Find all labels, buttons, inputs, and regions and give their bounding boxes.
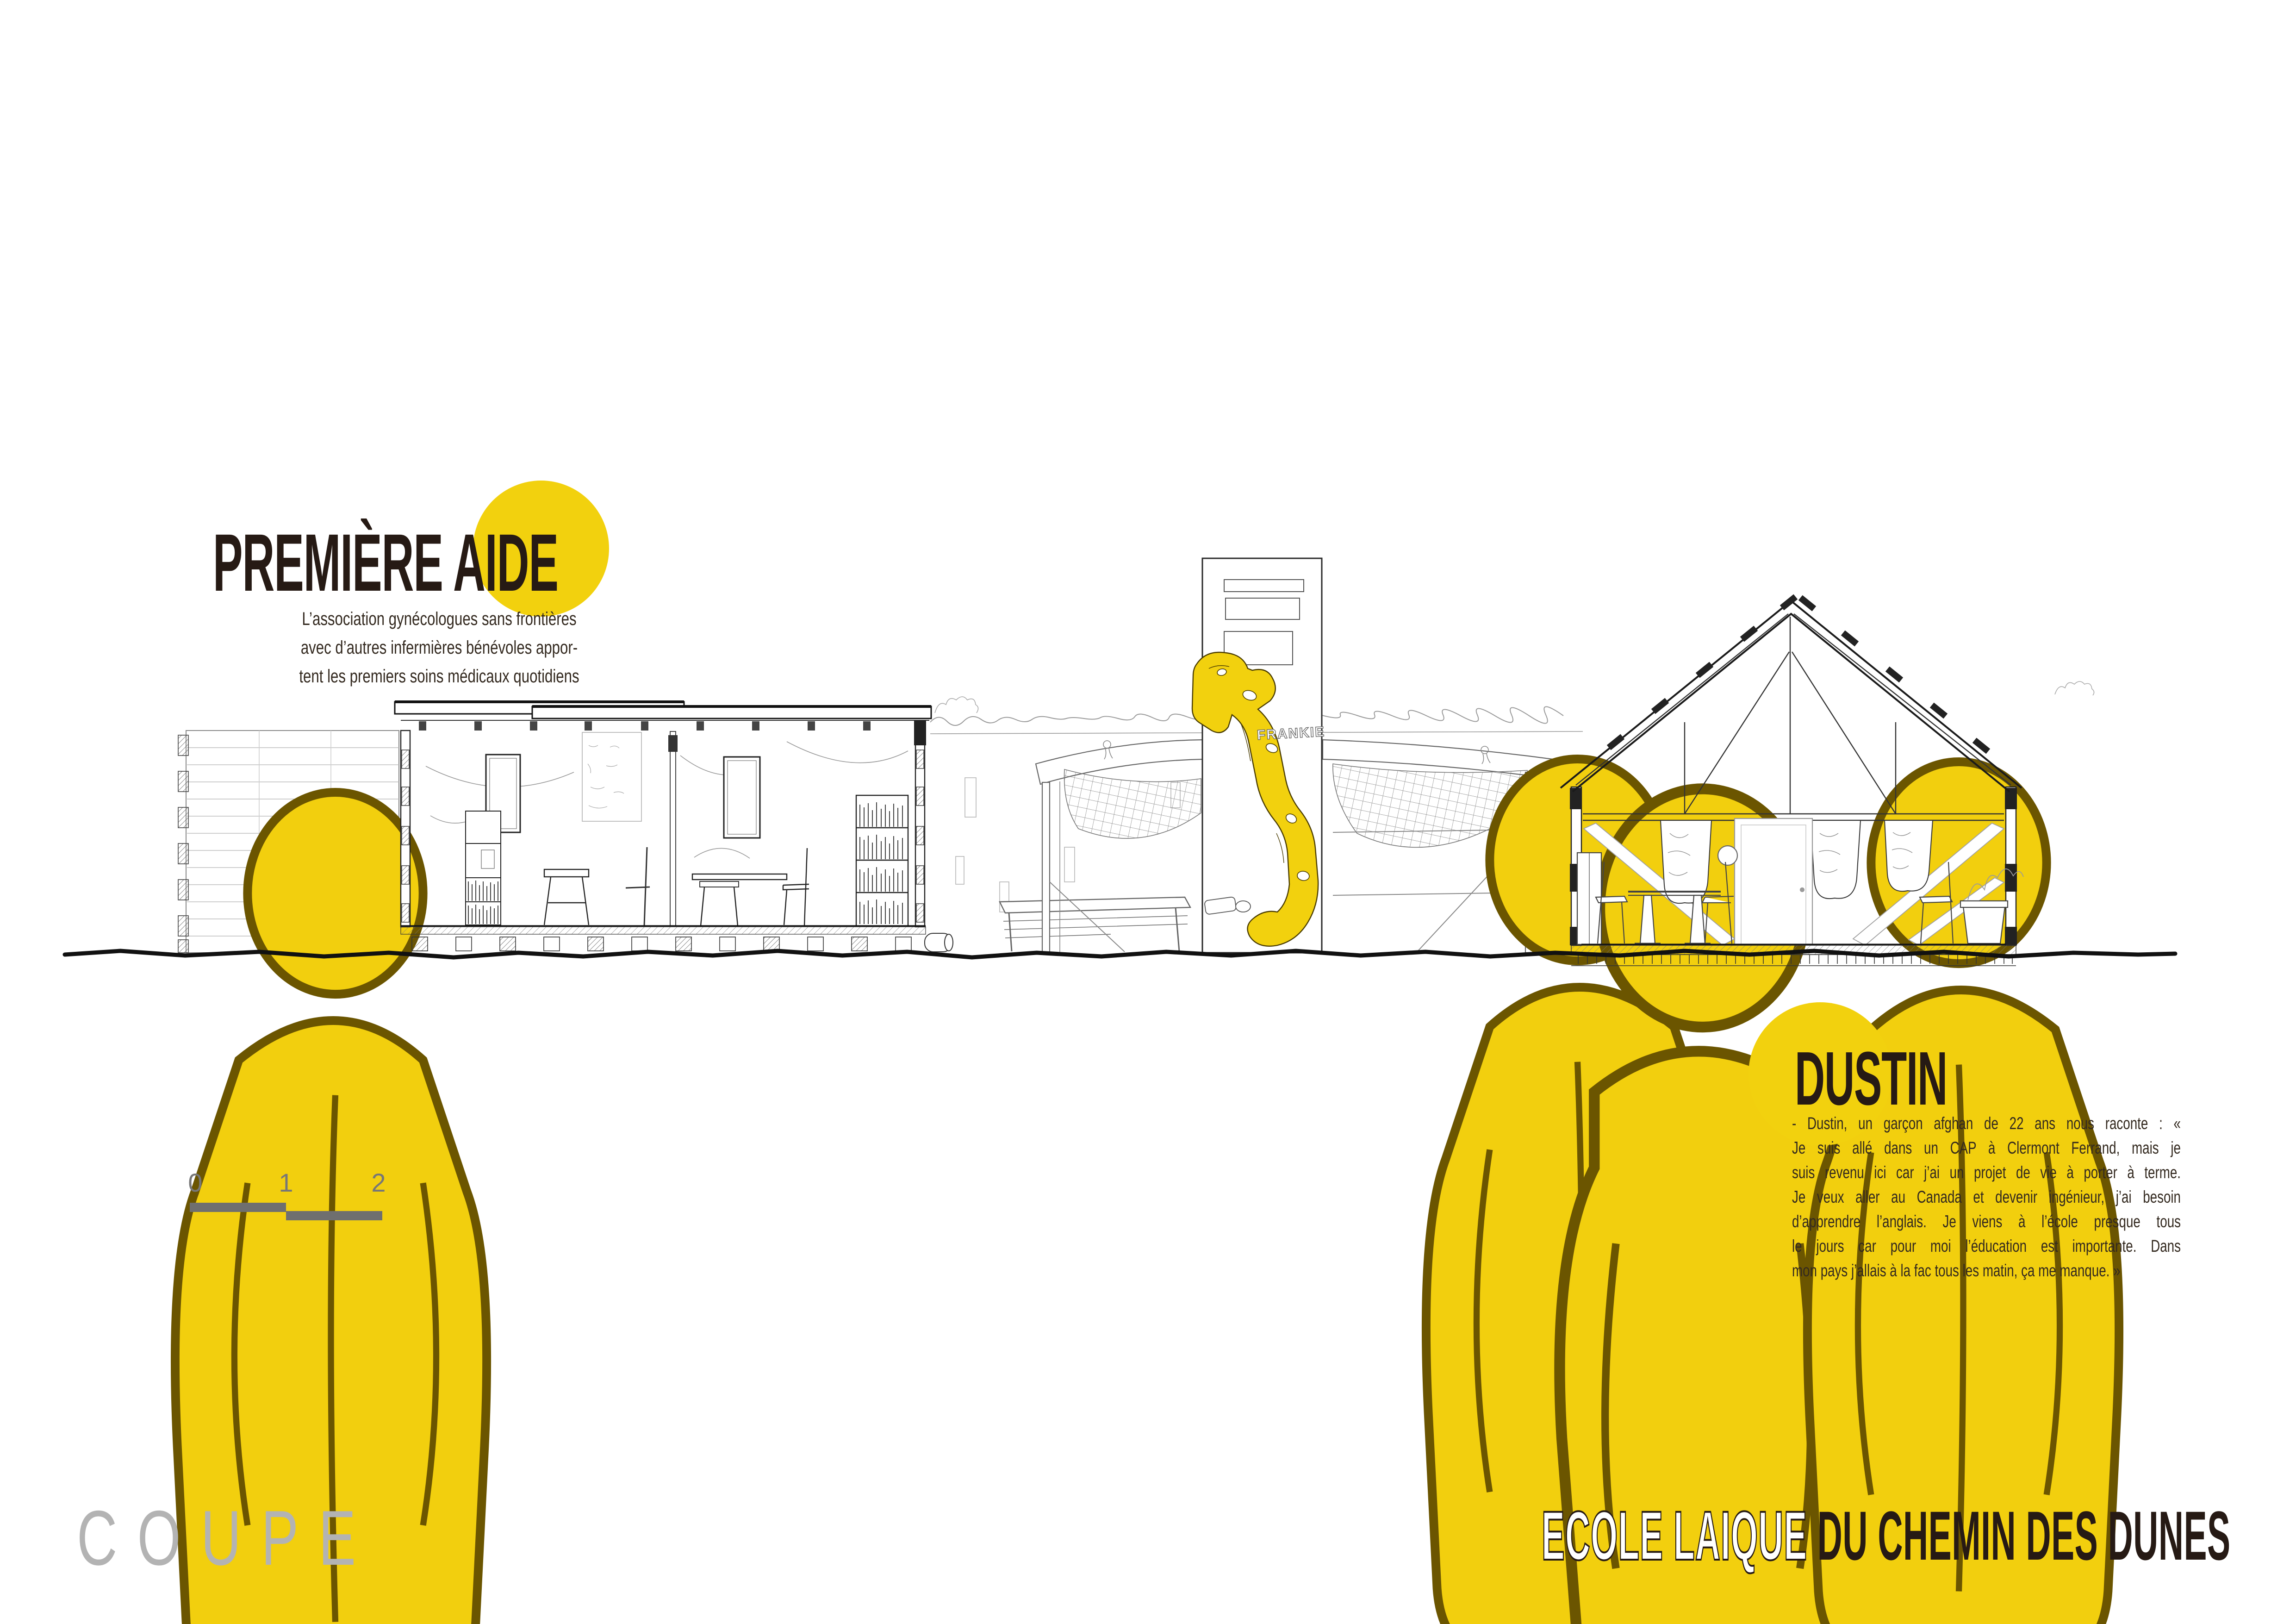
first-aid-title: PREMIÈRE AIDE [213, 522, 558, 604]
section-drawing: FRANKIE [0, 0, 2296, 1624]
first-aid-line: L’association gynécologues sans frontièr… [277, 605, 602, 633]
scale-segment-second [286, 1211, 382, 1220]
first-aid-line: tent les premiers soins médicaux quotidi… [277, 662, 602, 691]
dustin-line: mon pays j’allais à la fac tous les mati… [1792, 1258, 2181, 1283]
scale-label-0: 0 [181, 1168, 209, 1198]
roll-element [925, 933, 953, 952]
dustin-title: DUSTIN [1795, 1041, 1947, 1117]
dustin-line: d’apprendre l’anglais. Je viens à l’écol… [1792, 1209, 2181, 1234]
dustin-line: Je suis allé dans un CAP à Clermont Ferr… [1792, 1136, 2181, 1160]
first-aid-paragraph: L’association gynécologues sans frontièr… [277, 605, 602, 691]
project-title: ECOLE LAIQUE DU CHEMIN DES DUNES [1542, 1501, 2231, 1570]
page-root: FRANKIE [0, 0, 2296, 1624]
section-drawing-layer: FRANKIE [0, 0, 2296, 1624]
dustin-line: le jours car pour moi l’éducation est im… [1792, 1234, 2181, 1258]
dustin-line: suis revenu ici car j’ai un projet de vi… [1792, 1160, 2181, 1185]
dustin-line: Je veux aller au Canada et devenir ingén… [1792, 1185, 2181, 1209]
dustin-line: - Dustin, un garçon afghan de 22 ans nou… [1792, 1111, 2181, 1136]
dustin-paragraph: - Dustin, un garçon afghan de 22 ans nou… [1792, 1111, 2181, 1283]
project-title-solid: DU CHEMIN DES DUNES [1808, 1497, 2231, 1574]
scale-label-2: 2 [365, 1168, 392, 1198]
pergola-left [1036, 740, 1203, 953]
crocodile-totem: FRANKIE [1192, 558, 1325, 953]
drawing-type-label: COUPE [77, 1499, 376, 1577]
scale-segment-first [190, 1203, 286, 1212]
project-title-outline: ECOLE LAIQUE [1542, 1497, 1808, 1574]
first-aid-line: avec d’autres infermières bénévoles appo… [277, 633, 602, 662]
scale-label-1: 1 [272, 1168, 300, 1198]
